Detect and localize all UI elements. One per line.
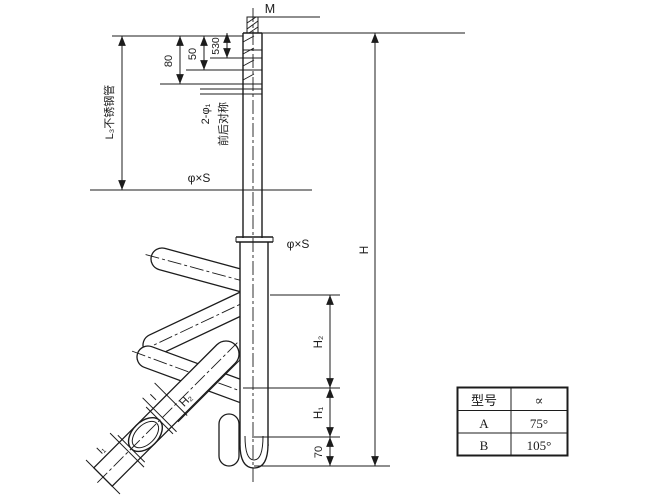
technical-drawing-page: l₁ l H₂ M <box>0 0 660 495</box>
table-cell-angle-a: 75° <box>530 416 548 431</box>
upper-tube-mask <box>243 33 262 238</box>
table-cell-angle-b: 105° <box>527 438 552 453</box>
table-header-model: 型号 <box>471 393 497 408</box>
lower-tube-mask <box>240 242 268 450</box>
tube-bottom-cap <box>240 444 268 468</box>
tube-spec-lower-label: φ×S <box>287 237 310 251</box>
dim-l-label: l <box>149 393 159 403</box>
table-header-angle: ∝ <box>535 393 544 408</box>
dim-h1-label: H₁ <box>313 407 325 419</box>
antenna-assembly-drawing: l₁ l H₂ M <box>0 0 660 495</box>
height-total-label: H <box>357 246 371 255</box>
dim-70-label: 70 <box>313 446 325 458</box>
left-tube-note-label: L₃不锈钢管 <box>102 85 116 140</box>
symmetry-note-label: 前后对称 <box>216 102 230 146</box>
model-angle-table: 型号 ∝ A 75° B 105° <box>458 388 568 456</box>
table-cell-model-b: B <box>480 438 489 453</box>
tube-spec-upper-label: φ×S <box>188 171 211 185</box>
thread-label: M <box>265 2 275 16</box>
bracket-end-sleeve <box>219 414 239 466</box>
holes-label: 2-φ₁ <box>200 103 212 124</box>
dim-h2-right-label: H₂ <box>313 336 325 349</box>
dim-50-label: 50 <box>187 48 199 60</box>
table-cell-model-a: A <box>479 416 489 431</box>
dim-530-label: 530 <box>210 37 222 55</box>
dim-80-label: 80 <box>163 55 175 67</box>
